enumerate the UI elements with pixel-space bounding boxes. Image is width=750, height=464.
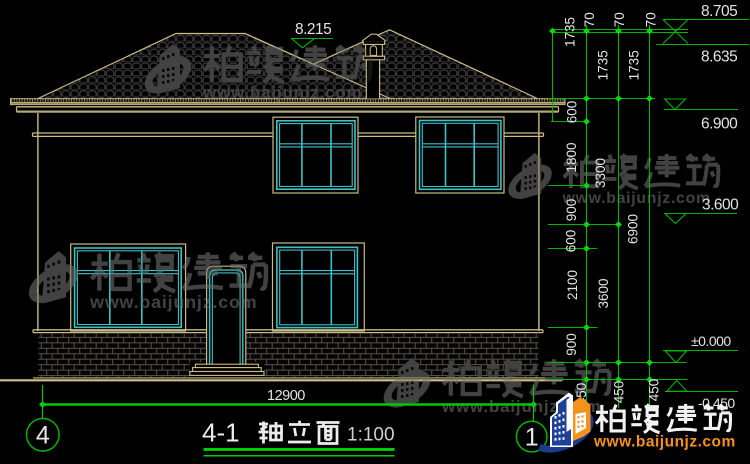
svg-text:600: 600: [565, 101, 580, 124]
svg-text:2100: 2100: [565, 270, 580, 300]
svg-text:3600: 3600: [596, 278, 611, 308]
svg-text:900: 900: [564, 333, 579, 356]
svg-text:-0.450: -0.450: [698, 395, 735, 411]
svg-text:600: 600: [564, 230, 579, 253]
svg-text:450: 450: [647, 379, 662, 402]
svg-text:4: 4: [36, 422, 50, 450]
svg-text:www.baijunjz.com: www.baijunjz.com: [593, 434, 736, 451]
svg-text:4-1: 4-1: [202, 418, 240, 448]
svg-text:12900: 12900: [267, 388, 305, 404]
svg-text:1:100: 1:100: [347, 425, 395, 446]
svg-text:±0.000: ±0.000: [691, 333, 731, 349]
svg-text:8.705: 8.705: [701, 3, 737, 20]
svg-text:8.635: 8.635: [701, 49, 737, 66]
svg-text:8.215: 8.215: [295, 21, 331, 38]
svg-text:450: 450: [612, 381, 627, 404]
svg-text:70: 70: [644, 12, 659, 27]
svg-text:1735: 1735: [627, 50, 642, 80]
svg-text:6.900: 6.900: [701, 116, 738, 133]
svg-text:6900: 6900: [626, 214, 641, 244]
svg-text:3.600: 3.600: [702, 197, 739, 214]
svg-text:3300: 3300: [593, 158, 608, 188]
svg-text:1: 1: [525, 424, 539, 452]
svg-text:1800: 1800: [564, 142, 579, 172]
svg-text:900: 900: [564, 199, 579, 222]
svg-text:1735: 1735: [596, 50, 611, 80]
svg-text:70: 70: [612, 12, 627, 27]
svg-text:1735: 1735: [563, 17, 578, 47]
svg-text:70: 70: [582, 12, 597, 27]
